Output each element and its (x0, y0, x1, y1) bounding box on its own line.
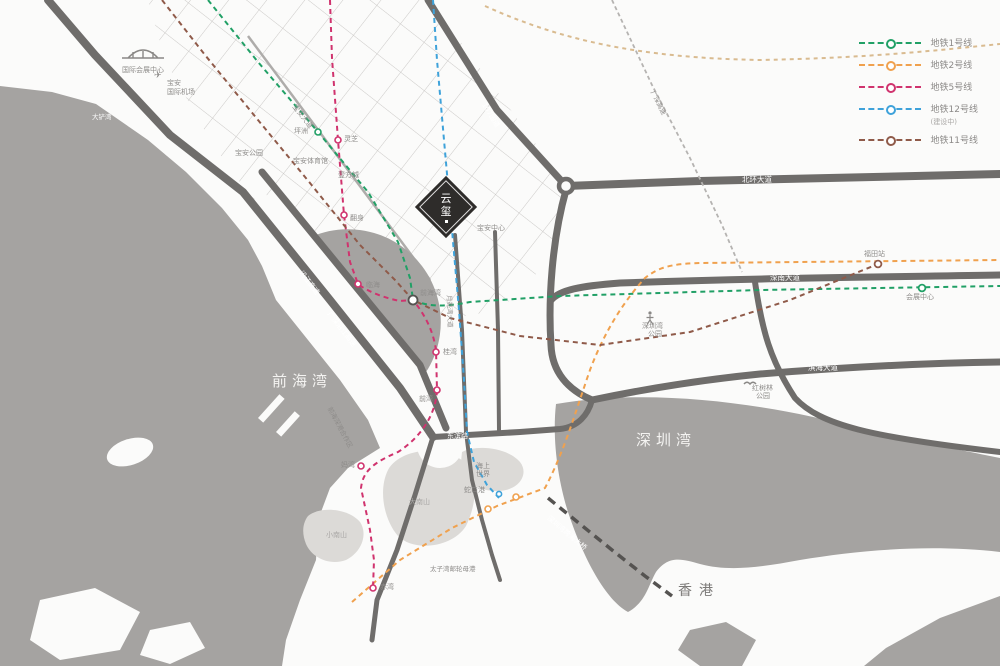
legend-label-line12: 地铁12号线 (931, 102, 978, 115)
map-drawing (0, 0, 1000, 666)
station-huizhan (919, 285, 926, 292)
label-station-fanshen: 翻身 (350, 214, 364, 222)
label-road-shennan: 深南大道 (770, 274, 800, 282)
label-shekou-port: 蛇口港 (464, 486, 485, 494)
label-szbay-park-line1: 深圳湾 (642, 322, 663, 330)
label-station-futian: 福田站 (864, 250, 885, 258)
station-seaworld (513, 494, 519, 500)
metro-legend: 地铁1号线 地铁2号线 地铁5号线 地铁12号线 (建设中) 地铁11号线 (859, 36, 978, 155)
label-hongkong: 香港 (678, 580, 720, 600)
label-shenzhen-bay: 深圳湾 (636, 429, 696, 450)
label-seaworld-line1: 海上 (476, 462, 490, 470)
logo-char-2: 玺 (441, 206, 452, 219)
label-seaworld-line2: 世界 (476, 470, 490, 478)
station-pingzhou (315, 129, 321, 135)
label-station-guiwan: 桂湾 (443, 348, 457, 356)
label-mangrove-line1: 红树林 (752, 384, 773, 392)
label-station-pingzhou: 坪洲 (294, 127, 308, 135)
label-taiziwan: 太子湾邮轮母港 (430, 566, 476, 573)
map-canvas[interactable]: 前海湾 深圳湾 香港 大铲湾 国际会展中心 ✈ 宝安 国际机场 宝安公园 宝安体… (0, 0, 1000, 666)
label-station-lingzhi: 灵芝 (344, 135, 358, 143)
legend-row-line11: 地铁11号线 (859, 133, 978, 146)
legend-row-line12: 地铁12号线 (859, 102, 978, 115)
label-mangrove-line2: 公园 (756, 392, 770, 400)
legend-row-line5: 地铁5号线 (859, 80, 978, 93)
legend-label-line2: 地铁2号线 (931, 58, 973, 71)
label-danan-mountain: 大南山 (409, 498, 430, 506)
label-station-chiwan: 赤湾 (380, 583, 394, 591)
label-station-qianhaiwan: 前海湾 (420, 289, 441, 297)
label-baoan-gym: 宝安体育馆 (293, 157, 328, 165)
station-shekougang (485, 506, 491, 512)
label-station-linhai: 临海 (366, 281, 380, 289)
station-chiwan (370, 585, 376, 591)
legend-swatch-line11 (859, 135, 921, 145)
plane-icon: ✈ (154, 71, 162, 81)
label-road-binhai: 滨海大道 (808, 364, 838, 372)
legend-row-line1: 地铁1号线 (859, 36, 978, 49)
logo-dot (445, 220, 448, 223)
station-lingzhi (335, 137, 341, 143)
label-road-dongbin: 东滨路 (447, 433, 468, 441)
station-qianwan (434, 387, 440, 393)
legend-swatch-line1 (859, 38, 921, 48)
legend-swatch-line5 (859, 82, 921, 92)
label-szbay-park-line2: 公园 (648, 330, 662, 338)
station-guiwan (433, 349, 439, 355)
legend-label-line11: 地铁11号线 (931, 133, 978, 146)
legend-label-line5: 地铁5号线 (931, 80, 973, 93)
station-qianhaiwan (409, 296, 418, 305)
label-qianhai-bay: 前海湾 (272, 370, 332, 391)
label-station-huizhan: 会展中心 (906, 293, 934, 301)
legend-row-line2: 地铁2号线 (859, 58, 978, 71)
station-line12-end (496, 491, 501, 496)
label-baoan-park: 宝安公园 (235, 149, 263, 157)
label-yifangcheng: 壹方城 (338, 171, 359, 179)
label-station-mawan: 妈湾 (341, 461, 355, 469)
project-logo: 云 玺 (424, 186, 468, 230)
legend-note-line12: (建设中) (931, 117, 978, 127)
roundabout (559, 179, 573, 193)
label-baoan-center: 宝安中心 (477, 224, 505, 232)
station-fanshen (341, 212, 347, 218)
legend-swatch-line12 (859, 104, 921, 114)
logo-char-1: 云 (441, 193, 452, 206)
legend-label-line1: 地铁1号线 (931, 36, 973, 49)
label-dachanwan: 大铲湾 (92, 114, 112, 121)
station-futian (875, 261, 882, 268)
label-airport-line1: 宝安 (167, 79, 181, 87)
label-road-yueliangwan: 月亮湾大道 (445, 295, 454, 328)
label-airport-line2: 国际机场 (167, 88, 195, 96)
label-road-beihuan: 北环大道 (742, 176, 772, 184)
label-xiaonan-mountain: 小南山 (326, 531, 347, 539)
station-linhai (355, 281, 361, 287)
station-mawan (358, 463, 364, 469)
legend-swatch-line2 (859, 60, 921, 70)
label-station-qianwan: 前湾 (419, 395, 433, 403)
